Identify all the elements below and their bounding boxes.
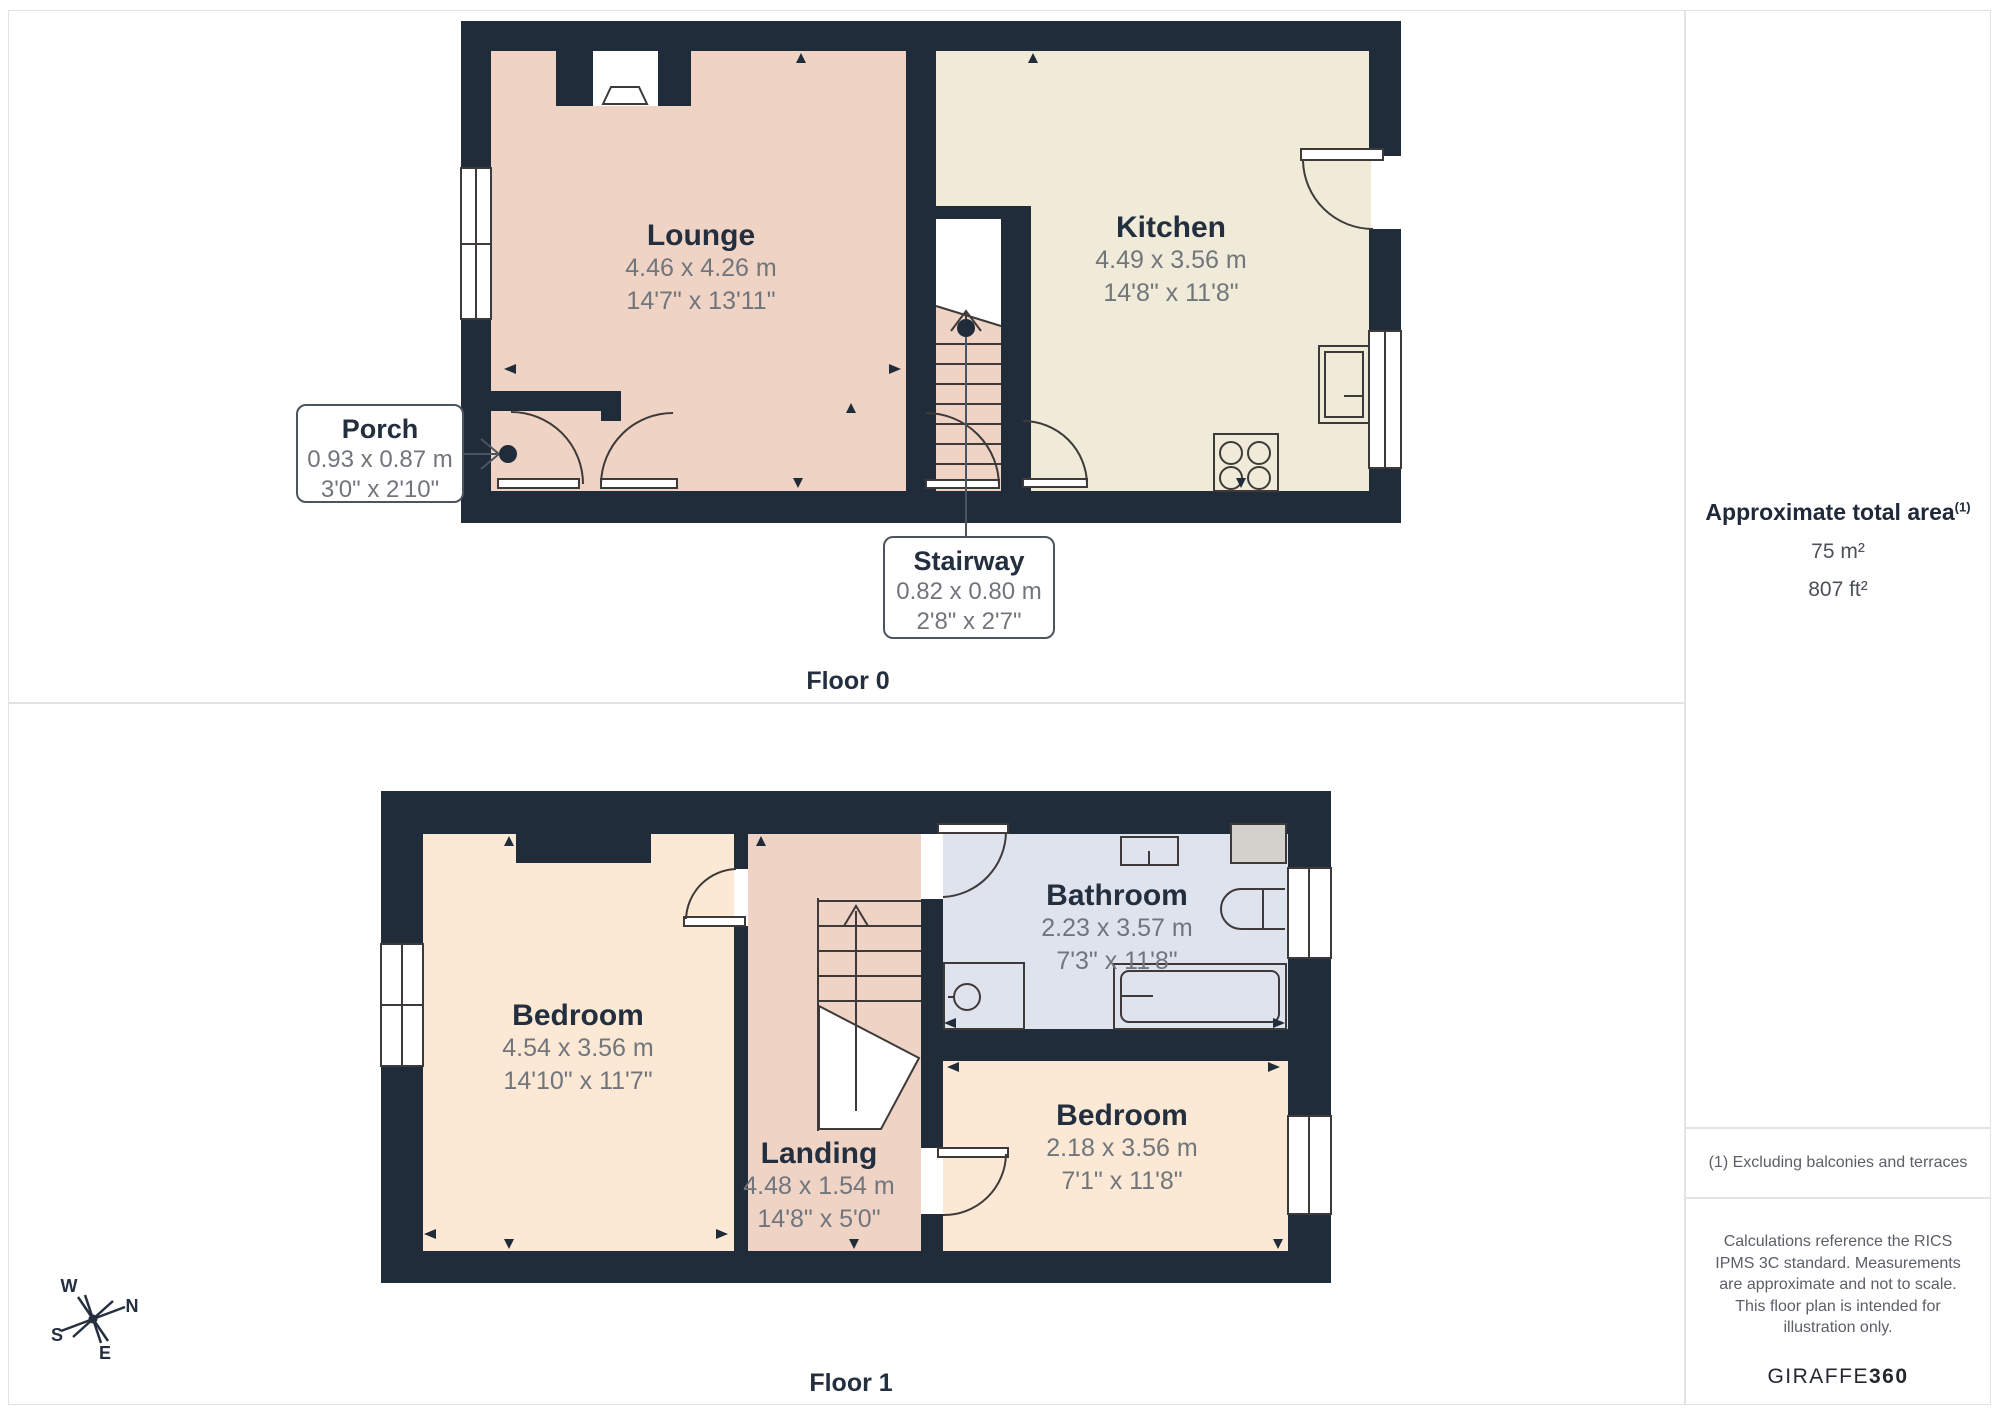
giraffe360-logo: GIRAFFE360 [1686,1365,1990,1389]
lounge-window [461,168,491,319]
room-dim-metric: 4.49 x 3.56 m [1095,244,1246,277]
room-dim-metric: 4.46 x 4.26 m [625,252,776,285]
room-dim-metric: 0.93 x 0.87 m [298,445,462,475]
room-dim-metric: 2.18 x 3.56 m [1046,1132,1197,1165]
porch-callout: Porch 0.93 x 0.87 m 3'0" x 2'10" [296,404,464,503]
room-dim-imperial: 3'0" x 2'10" [298,475,462,505]
stove-icon [1214,434,1278,491]
bedroom1-window [381,944,423,1066]
floor1-caption: Floor 1 [809,1369,892,1398]
room-name: Kitchen [1095,211,1246,244]
room-dim-metric: 0.82 x 0.80 m [885,577,1053,607]
fireplace-icon [593,51,658,106]
sidebar-disclaimer-panel: Calculations reference the RICS IPMS 3C … [1685,1198,1991,1405]
bedroom2-label: Bedroom 2.18 x 3.56 m 7'1" x 11'8" [1046,1099,1197,1197]
brand-suffix: 360 [1869,1365,1909,1388]
total-area-ft2: 807 ft² [1686,578,1990,602]
kitchen-window [1369,331,1401,468]
total-area-title: Approximate total area(1) [1686,499,1990,526]
room-dim-imperial: 14'7" x 13'11" [625,285,776,318]
room-dim-imperial: 14'8" x 11'8" [1095,277,1246,310]
room-name: Stairway [885,546,1053,577]
room-name: Bathroom [1041,879,1192,912]
room-name: Bedroom [1046,1099,1197,1132]
kitchen-label: Kitchen 4.49 x 3.56 m 14'8" x 11'8" [1095,211,1246,309]
compass-e: E [99,1343,111,1363]
room-name: Lounge [625,219,776,252]
floor0-panel: Lounge 4.46 x 4.26 m 14'7" x 13'11" Kitc… [8,10,1685,703]
room-dim-imperial: 7'1" x 11'8" [1046,1165,1197,1198]
room-name: Porch [298,414,462,445]
total-area-m2: 75 m² [1686,540,1990,564]
room-dim-metric: 4.48 x 1.54 m [743,1170,894,1203]
room-dim-imperial: 2'8" x 2'7" [885,607,1053,637]
landing-label: Landing 4.48 x 1.54 m 14'8" x 5'0" [743,1137,894,1235]
room-dim-imperial: 14'8" x 5'0" [743,1203,894,1236]
room-dim-metric: 2.23 x 3.57 m [1041,912,1192,945]
room-dim-imperial: 14'10" x 11'7" [502,1065,653,1098]
footnote-text: (1) Excluding balconies and terraces [1709,1154,1968,1172]
bathroom-window [1288,868,1331,958]
boiler-icon [1231,824,1286,863]
bedroom1-label: Bedroom 4.54 x 3.56 m 14'10" x 11'7" [502,999,653,1097]
compass-rose-icon: W N S E [33,1259,153,1379]
total-area-block: Approximate total area(1) 75 m² 807 ft² [1686,499,1990,602]
floor0-caption: Floor 0 [806,667,889,696]
compass-w: W [61,1276,78,1296]
lounge-label: Lounge 4.46 x 4.26 m 14'7" x 13'11" [625,219,776,317]
floor1-panel: Bedroom 4.54 x 3.56 m 14'10" x 11'7" Bat… [8,703,1685,1405]
brand-name: GIRAFFE [1767,1365,1869,1388]
compass-n: N [126,1296,139,1316]
sidebar-area-panel: Approximate total area(1) 75 m² 807 ft² [1685,10,1991,1128]
stairway-callout: Stairway 0.82 x 0.80 m 2'8" x 2'7" [883,536,1055,639]
room-dim-imperial: 7'3" x 11'8" [1041,945,1192,978]
floorplan-page: Lounge 4.46 x 4.26 m 14'7" x 13'11" Kitc… [0,0,2000,1415]
disclaimer-text: Calculations reference the RICS IPMS 3C … [1707,1231,1969,1339]
floor1-plan-drawing [9,704,1684,1404]
floor0-plan-drawing [9,11,1684,702]
bathroom-label: Bathroom 2.23 x 3.57 m 7'3" x 11'8" [1041,879,1192,977]
room-dim-metric: 4.54 x 3.56 m [502,1032,653,1065]
compass-s: S [51,1325,63,1345]
footnote-marker: (1) [1955,499,1971,514]
room-name: Landing [743,1137,894,1170]
bedroom2-window [1288,1116,1331,1214]
room-name: Bedroom [502,999,653,1032]
sidebar-footnote-panel: (1) Excluding balconies and terraces [1685,1128,1991,1198]
